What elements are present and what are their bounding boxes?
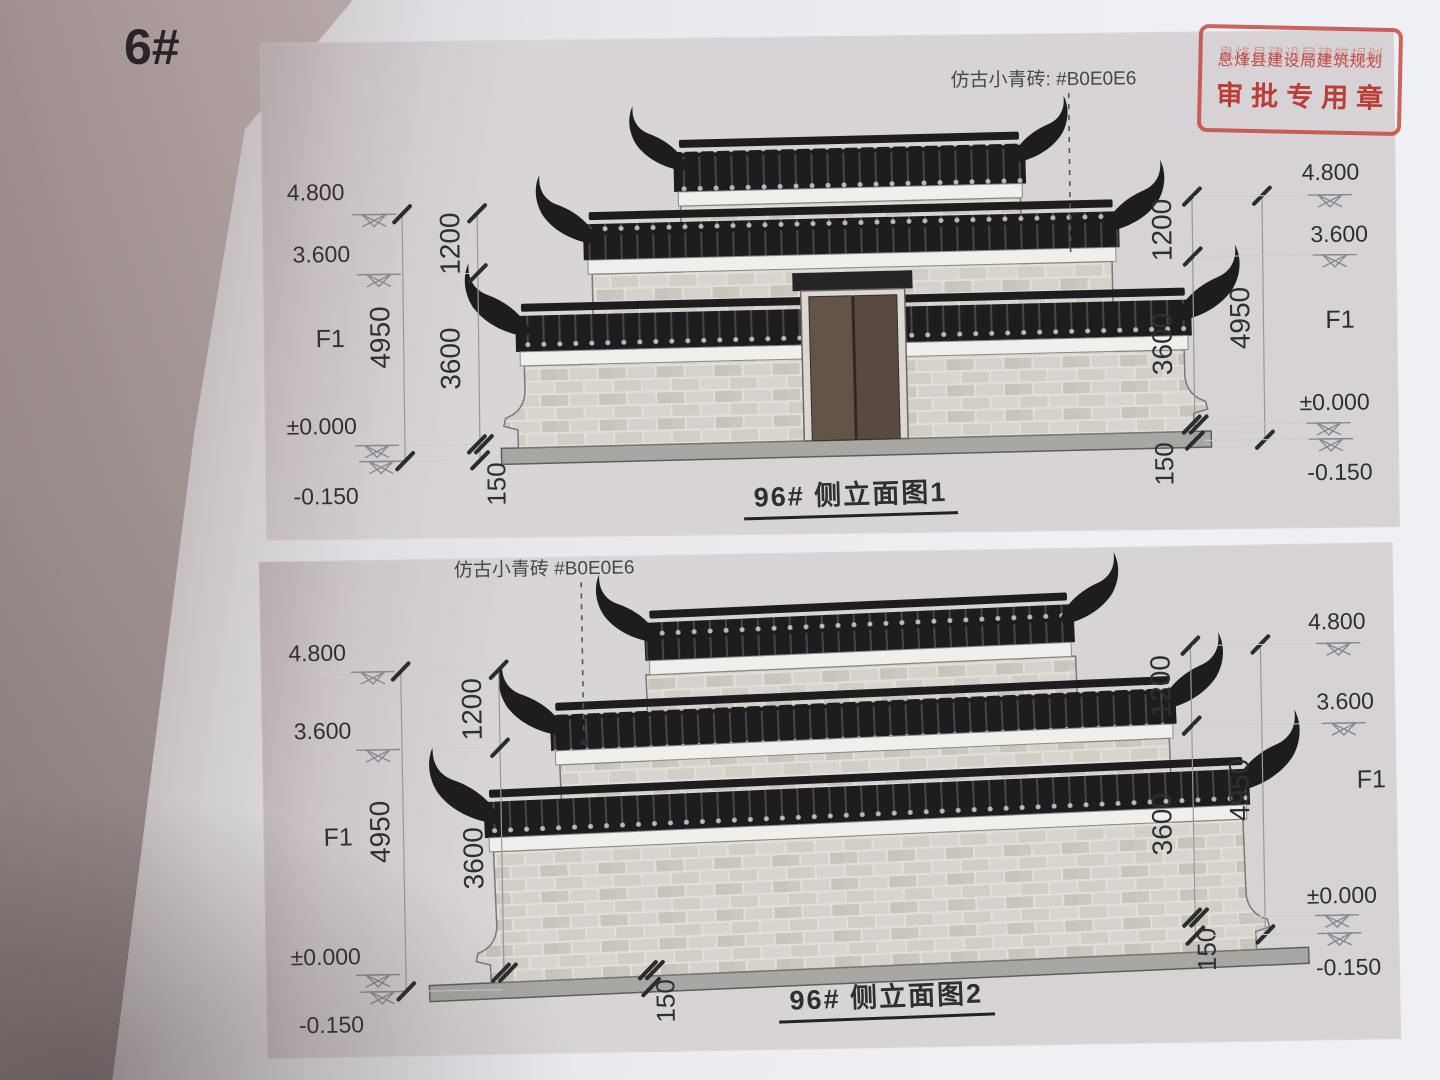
dim-3600-left: 3600: [457, 827, 489, 890]
door-leaf-left: [809, 296, 856, 441]
dim-150-right: 150: [1149, 442, 1180, 486]
level-0000-right: ±0.000: [1307, 881, 1378, 908]
floor-label-right: F1: [1356, 765, 1386, 794]
level-3600-right: 3.600: [1316, 687, 1374, 714]
building-elevation-1: [461, 91, 1244, 465]
level-4800-right: 4.800: [1308, 608, 1366, 635]
level-3600-left: 3.600: [292, 241, 350, 268]
drawing-panel-2: 仿古小青砖 #B0E0E6 4.800 3.600 F1 ±0.000 -0.1…: [259, 542, 1402, 1059]
building-elevation-2: [412, 544, 1310, 1001]
eave-horn-icon: [595, 572, 658, 645]
floor-label-left: F1: [323, 823, 353, 852]
level-m0150-left: -0.150: [293, 483, 359, 510]
level-3600-right: 3.600: [1310, 220, 1368, 247]
dim-3600-right: 3600: [1146, 313, 1178, 376]
eave-horn-icon: [498, 661, 565, 739]
level-m0150-right: -0.150: [1307, 458, 1373, 485]
drawing-title-1: 96# 侧立面图1: [743, 476, 958, 519]
level-0000-left: ±0.000: [290, 943, 361, 970]
dim-150-left: 150: [481, 462, 512, 506]
dim-1200-right: 1200: [1146, 199, 1178, 262]
door-leaf-right: [854, 295, 901, 440]
level-4800-left: 4.800: [288, 639, 346, 666]
dim-3600-left: 3600: [434, 327, 466, 390]
material-label: 仿古小青砖: #B0E0E6: [950, 67, 1136, 91]
svg-text:96# 侧立面图1: 96# 侧立面图1: [753, 476, 947, 513]
approval-stamp: 息烽县建设局建筑规划 审批专用章: [1197, 24, 1403, 136]
level-4800-left: 4.800: [287, 179, 345, 206]
leader-line: [581, 582, 584, 736]
level-0000-right: ±0.000: [1299, 388, 1369, 415]
stamp-seal-line: 审批专用章: [1208, 73, 1392, 116]
level-4800-right: 4.800: [1301, 159, 1359, 186]
eave-horn-icon: [535, 174, 597, 246]
dim-total-right: 4950: [1224, 287, 1256, 350]
level-0000-left: ±0.000: [287, 413, 357, 440]
eave-horn-icon: [1058, 552, 1121, 625]
page-number: 6#: [124, 18, 180, 76]
floor-label-right: F1: [1325, 306, 1355, 334]
dim-150-left: 150: [650, 979, 681, 1023]
dim-1200-left: 1200: [434, 212, 466, 275]
level-m0150-right: -0.150: [1316, 953, 1382, 980]
dim-total-left: 4950: [364, 800, 396, 863]
material-label: 仿古小青砖 #B0E0E6: [454, 556, 635, 581]
floor-label-left: F1: [315, 325, 345, 353]
eave-horn-icon: [629, 105, 687, 172]
dim-3600-right: 3600: [1146, 793, 1178, 856]
eave-horn-icon: [1011, 95, 1069, 162]
door: [792, 270, 916, 441]
dim-total-left: 4950: [364, 306, 396, 369]
dim-1200-right: 1200: [1145, 655, 1177, 718]
dim-1200-left: 1200: [456, 678, 488, 741]
level-3600-left: 3.600: [293, 717, 351, 744]
eave-horn-icon: [428, 744, 499, 826]
stamp-agency-line: 息烽县建设局建筑规划: [1218, 46, 1383, 72]
elevation-drawing-2: 仿古小青砖 #B0E0E6 4.800 3.600 F1 ±0.000 -0.1…: [259, 542, 1402, 1059]
dim-total-right: 4950: [1223, 758, 1255, 821]
level-m0150-left: -0.150: [299, 1011, 365, 1038]
dim-150-right: 150: [1191, 927, 1222, 971]
